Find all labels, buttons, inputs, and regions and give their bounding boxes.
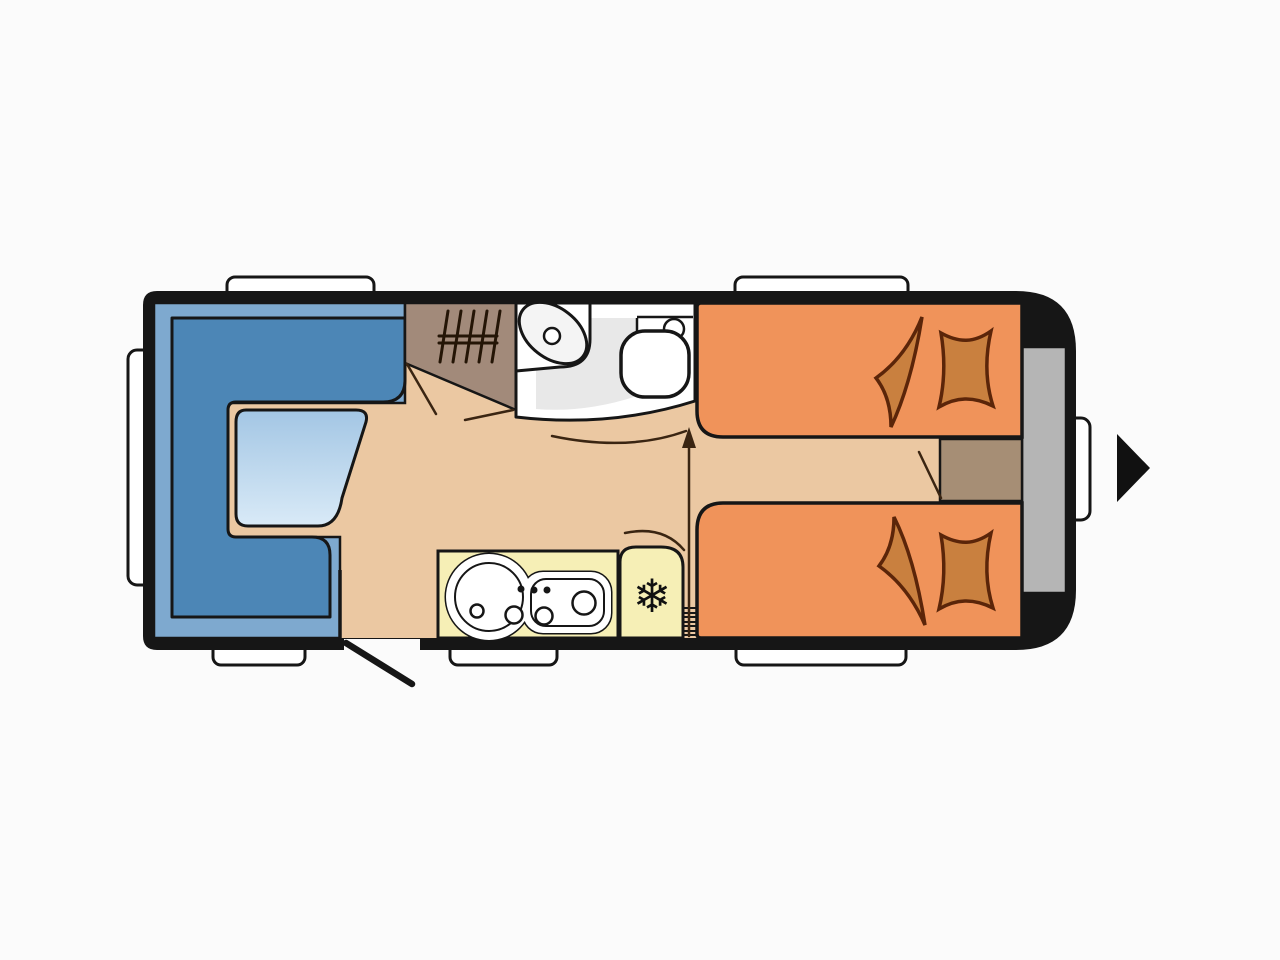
stove-knob-icon	[544, 587, 551, 594]
caravan-floorplan-canvas: ❄	[0, 0, 1280, 960]
floorplan-drawing: ❄	[0, 0, 1280, 960]
burner-icon	[506, 607, 523, 624]
entrance-door	[344, 639, 420, 684]
burner-large-icon	[573, 592, 596, 615]
burner-icon	[536, 608, 553, 625]
stove-knob-icon	[518, 586, 525, 593]
toilet-icon	[621, 331, 689, 397]
bedside-cabinet	[940, 439, 1022, 501]
snowflake-icon: ❄	[633, 569, 672, 623]
direction-arrow-icon	[1117, 434, 1150, 502]
stove-knob-icon	[531, 587, 538, 594]
pillow-icon-top	[939, 331, 993, 407]
pillow-icon-bottom	[939, 533, 993, 609]
front-storage	[1022, 347, 1066, 593]
sink-drain-small-icon	[471, 605, 484, 618]
sink-drain-icon	[544, 328, 560, 344]
